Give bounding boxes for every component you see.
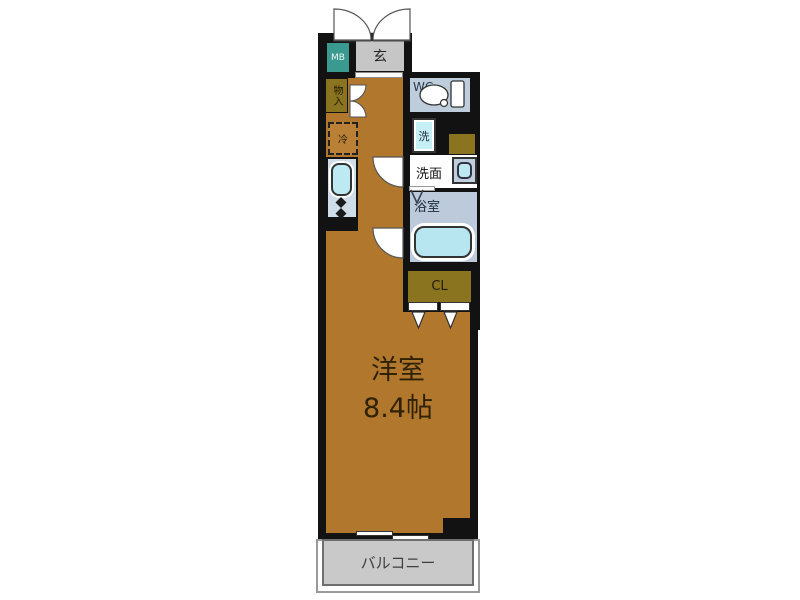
pipe-space: [448, 133, 476, 155]
wc-label: WC: [413, 80, 433, 94]
refrigerator-label: 冷: [338, 131, 348, 146]
western-room-label: 洋室 8.4帖: [326, 352, 470, 428]
washbasin-bowl: [457, 162, 472, 179]
entrance-step: [355, 72, 403, 78]
storage-label: 物入: [329, 85, 344, 107]
balcony-label: バルコニー: [361, 552, 436, 573]
washbasin-icon: [452, 157, 477, 184]
meter-box-room: MB: [326, 42, 350, 73]
kitchen-wall-stub: [326, 219, 358, 231]
refrigerator-space: 冷: [328, 122, 358, 155]
meter-box-label: MB: [331, 53, 345, 63]
closet-room: CL: [407, 270, 472, 303]
closet-label: CL: [431, 279, 447, 294]
kitchen-sink-icon: [331, 163, 352, 196]
closet-door-panel-right: [440, 302, 470, 311]
entrance-room: 玄: [355, 40, 405, 72]
balcony-room: バルコニー: [322, 539, 474, 586]
bathtub-icon: [414, 226, 472, 258]
closet-door-panel-left: [408, 302, 438, 311]
bathroom-door-sill: [409, 186, 435, 191]
storage-room: 物入: [325, 78, 348, 113]
western-room-name: 洋室: [326, 352, 470, 390]
laundry-label: 洗: [419, 128, 430, 144]
entrance-label: 玄: [373, 46, 387, 66]
bathroom-label: 浴室: [414, 196, 440, 215]
western-room-size: 8.4帖: [326, 390, 470, 428]
laundry-pan: 洗: [412, 118, 436, 153]
washroom-label: 洗面: [416, 163, 442, 182]
wall-notch: [443, 518, 470, 533]
window-pane-left: [356, 531, 393, 536]
floor-plan: MB 玄 物入 冷 WC 洗 洗面 浴室 CL 洋室 8.4帖 バルコニー: [0, 0, 800, 600]
